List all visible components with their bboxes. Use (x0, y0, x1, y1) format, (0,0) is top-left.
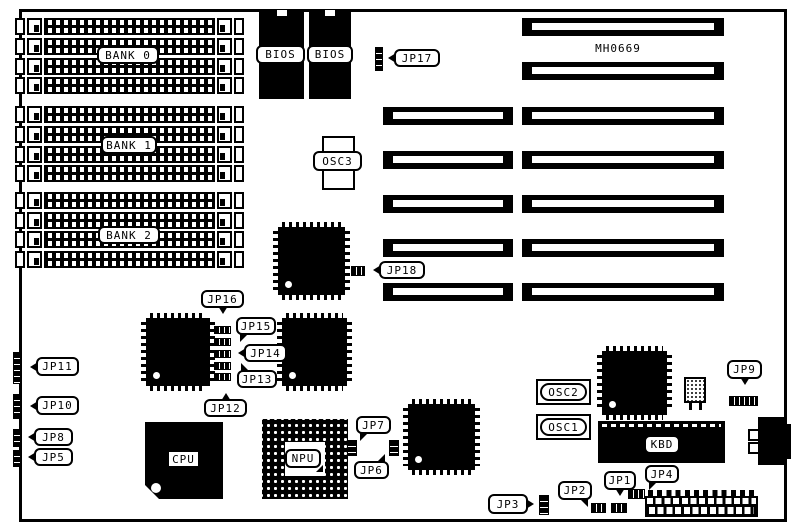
simm-cap (234, 106, 244, 123)
bank2-label: BANK 2 (98, 226, 160, 244)
simm-slot (15, 251, 244, 268)
callout-jp1: JP1 (604, 471, 636, 490)
simm-clip (217, 18, 232, 35)
simm-slot (15, 106, 244, 123)
simm-cap (15, 231, 25, 248)
simm-cap (234, 126, 244, 143)
simm-clip (217, 146, 232, 163)
isa-slot (383, 283, 513, 301)
jumper-block-jp12 (214, 373, 231, 381)
simm-clip (27, 231, 42, 248)
simm-contacts (44, 251, 215, 268)
bank0-label: BANK 0 (97, 46, 159, 64)
simm-contacts (44, 77, 215, 94)
callout-jp9: JP9 (727, 360, 762, 379)
simm-clip (27, 77, 42, 94)
simm-contacts (44, 192, 215, 209)
oscillator-osc1: OSC1 (536, 414, 591, 440)
jumper-block-jp17 (375, 47, 383, 71)
crystal-leg (689, 401, 692, 410)
simm-cap (15, 38, 25, 55)
simm-slot (15, 192, 244, 209)
simm-cap (234, 192, 244, 209)
jumper-block-jp8 (13, 429, 21, 447)
simm-cap (15, 212, 25, 229)
chipset-qfp (278, 227, 345, 295)
isa-slot (522, 283, 724, 301)
simm-slot (15, 165, 244, 182)
simm-clip (27, 146, 42, 163)
simm-clip (27, 58, 42, 75)
oscillator-osc3-label: OSC3 (313, 151, 362, 171)
simm-cap (15, 146, 25, 163)
jumper-block-jp13 (214, 362, 231, 370)
simm-cap (15, 251, 25, 268)
simm-clip (217, 212, 232, 229)
jumper-block-jp5 (13, 450, 21, 467)
chipset-qfp (146, 318, 210, 386)
callout-jp13: JP13 (237, 370, 277, 388)
simm-clip (27, 251, 42, 268)
jumper-block-jp10 (13, 394, 21, 419)
simm-clip (27, 106, 42, 123)
jumper-block-jp16 (214, 326, 231, 334)
simm-clip (217, 126, 232, 143)
simm-cap (234, 251, 244, 268)
isa-slot (383, 195, 513, 213)
power-header-dashes (647, 498, 756, 505)
callout-jp7: JP7 (356, 416, 391, 434)
simm-cap (234, 231, 244, 248)
oscillator-osc2-label: OSC2 (540, 383, 587, 401)
simm-contacts (44, 18, 215, 35)
simm-cap (15, 18, 25, 35)
simm-clip (27, 38, 42, 55)
simm-clip (27, 165, 42, 182)
jumper-block-jp11 (13, 352, 21, 384)
simm-cap (15, 165, 25, 182)
callout-jp11: JP11 (36, 357, 79, 376)
callout-jp14: JP14 (244, 344, 287, 362)
simm-cap (234, 212, 244, 229)
simm-cap (15, 106, 25, 123)
io-qfp (408, 404, 475, 470)
npu-label: NPU (285, 449, 321, 468)
simm-clip (217, 38, 232, 55)
simm-slot (15, 77, 244, 94)
simm-clip (217, 165, 232, 182)
simm-cap (234, 165, 244, 182)
simm-cap (234, 18, 244, 35)
keyboard-connector-contact (748, 429, 760, 441)
jumper-block-jp14 (214, 350, 231, 358)
isa-slot (383, 151, 513, 169)
simm-contacts (44, 106, 215, 123)
simm-clip (27, 192, 42, 209)
jumper-block-jp1 (611, 503, 627, 513)
jumper-block-jp2 (591, 503, 606, 513)
bank1-label: BANK 1 (101, 136, 157, 154)
simm-cap (15, 58, 25, 75)
simm-cap (234, 146, 244, 163)
jumper-block-jp9 (729, 396, 758, 406)
simm-clip (217, 106, 232, 123)
bios-right-label: BIOS (307, 45, 353, 64)
callout-jp12: JP12 (204, 399, 247, 417)
simm-clip (217, 77, 232, 94)
isa-slot (522, 195, 724, 213)
isa-slot (383, 107, 513, 125)
callout-jp15: JP15 (236, 317, 276, 335)
keyboard-connector-body (758, 417, 784, 465)
simm-cap (234, 58, 244, 75)
keyboard-controller-qfp (602, 351, 667, 415)
power-header-cells (647, 505, 756, 515)
isa-slot (522, 18, 724, 36)
callout-jp17: JP17 (394, 49, 440, 67)
jumper-block-jp6 (389, 440, 399, 456)
crystal (684, 377, 706, 403)
simm-cap (15, 77, 25, 94)
callout-jp2: JP2 (558, 481, 592, 500)
motherboard-diagram: BANK 0 BANK 1 BANK 2 BIOS BIOS JP17 MH06… (0, 0, 791, 527)
isa-slot (522, 151, 724, 169)
simm-cap (234, 77, 244, 94)
oscillator-osc1-label: OSC1 (540, 418, 587, 436)
simm-slot (15, 18, 244, 35)
simm-cap (15, 126, 25, 143)
board-model: MH0669 (586, 42, 650, 55)
isa-slot (383, 239, 513, 257)
callout-jp18: JP18 (379, 261, 425, 279)
simm-clip (217, 231, 232, 248)
kbd-label: KBD (644, 435, 680, 454)
jumper-block-jp7 (347, 440, 357, 456)
simm-clip (217, 192, 232, 209)
chipset-qfp (282, 318, 347, 386)
power-header-box (645, 496, 758, 517)
keyboard-connector-tab (784, 424, 791, 459)
jumper-block-jp18 (351, 266, 365, 276)
simm-contacts (44, 165, 215, 182)
callout-jp6: JP6 (354, 461, 389, 479)
isa-slot (522, 239, 724, 257)
bios-left-label: BIOS (256, 45, 305, 64)
simm-clip (217, 251, 232, 268)
crystal-leg (699, 401, 702, 410)
callout-jp4: JP4 (645, 465, 679, 483)
callout-jp10: JP10 (36, 396, 79, 415)
simm-clip (27, 212, 42, 229)
simm-clip (217, 58, 232, 75)
keyboard-connector-contact (748, 442, 760, 454)
callout-jp16: JP16 (201, 290, 244, 308)
callout-jp8: JP8 (34, 428, 73, 446)
jumper-block-jp3 (539, 495, 549, 515)
power-header (645, 490, 758, 517)
isa-slot (522, 107, 724, 125)
simm-cap (234, 38, 244, 55)
callout-jp3: JP3 (488, 494, 528, 514)
simm-clip (27, 126, 42, 143)
jumper-block-jp4 (628, 489, 645, 499)
isa-slot (522, 62, 724, 80)
callout-jp5: JP5 (34, 448, 73, 466)
simm-cap (15, 192, 25, 209)
simm-clip (27, 18, 42, 35)
cpu-label: CPU (167, 450, 200, 468)
oscillator-osc2: OSC2 (536, 379, 591, 405)
keyboard-connector (746, 413, 791, 470)
jumper-block-jp15 (214, 338, 231, 346)
